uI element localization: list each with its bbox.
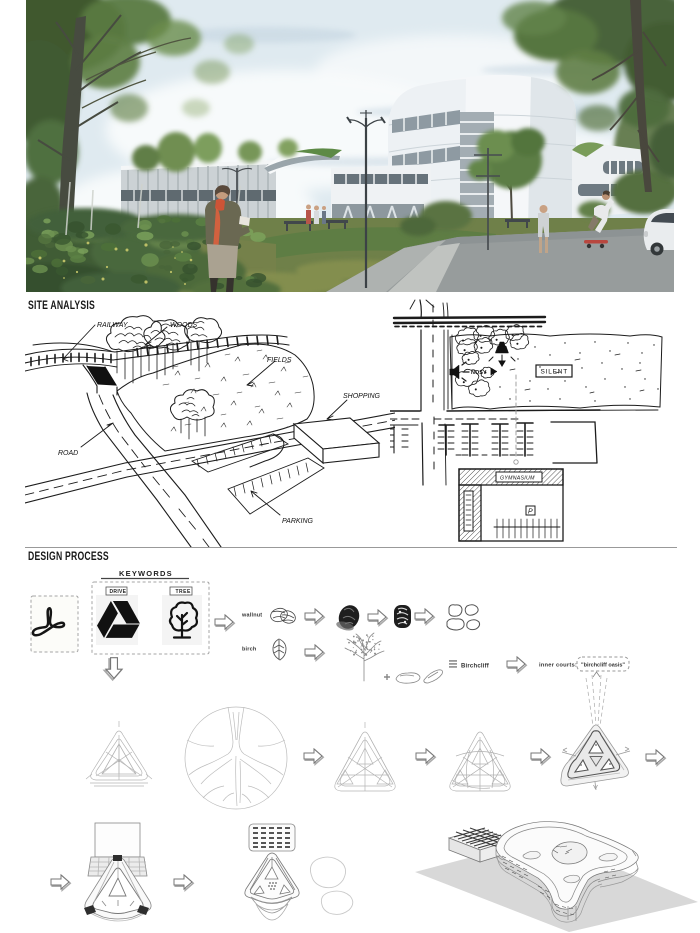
svg-text:RAILWAY: RAILWAY: [97, 322, 129, 329]
svg-text:birch: birch: [242, 647, 257, 653]
svg-text:FIELDS: FIELDS: [267, 357, 292, 364]
svg-text:SILENT: SILENT: [541, 369, 569, 376]
svg-text:WOODS: WOODS: [170, 322, 198, 329]
svg-text:ROAD: ROAD: [58, 450, 78, 457]
svg-text:GYMNASIUM: GYMNASIUM: [500, 476, 535, 482]
svg-text:TREE: TREE: [176, 589, 192, 595]
svg-text:wallnut: wallnut: [241, 613, 262, 619]
svg-text:inner courts:: inner courts:: [539, 663, 577, 669]
svg-text:Birchcliff: Birchcliff: [461, 664, 490, 670]
svg-text:"birchcliff oasis": "birchcliff oasis": [581, 662, 625, 668]
svg-text:SHOPPING: SHOPPING: [343, 393, 381, 400]
svg-text:P: P: [528, 509, 533, 516]
svg-text:KEYWORDS: KEYWORDS: [119, 569, 173, 578]
svg-text:NOSY: NOSY: [471, 370, 487, 376]
svg-text:DRIVE: DRIVE: [110, 589, 127, 595]
svg-text:PARKING: PARKING: [282, 518, 314, 525]
